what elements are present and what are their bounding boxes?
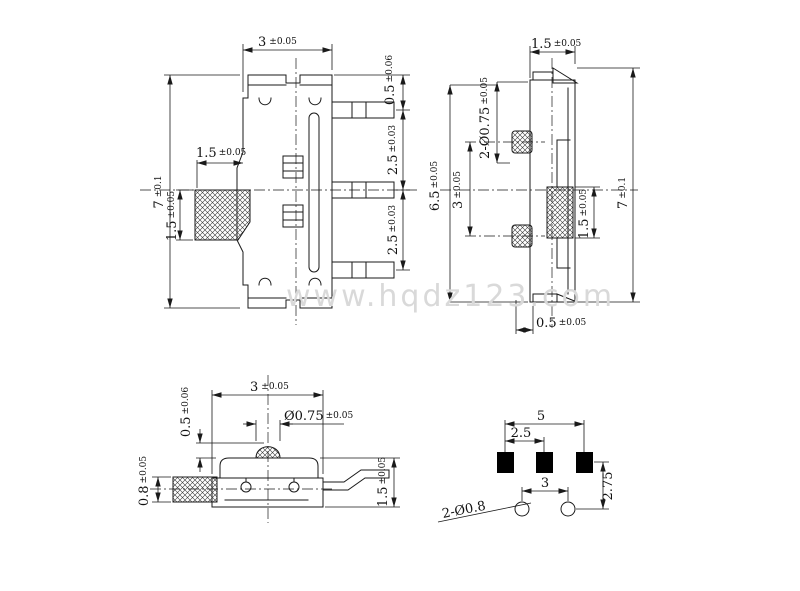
dim-top-width: 3±0.05 [250, 380, 289, 395]
dim-tolerance: ±0.06 [385, 55, 395, 83]
dim-value: 0.8 [137, 485, 152, 506]
dim-front-width: 3±0.05 [258, 35, 297, 50]
dim-value: 1.5 [577, 218, 592, 239]
dim-side-pegs: 2-Ø0.75±0.05 [478, 77, 493, 159]
dim-pcb-holes: 2-Ø0.8 [441, 499, 487, 522]
dim-tolerance: ±0.05 [261, 382, 289, 392]
pcb-pad [576, 452, 593, 473]
dim-top-peg-height: 0.5±0.06 [179, 387, 194, 438]
pcb-hole [561, 502, 575, 516]
dim-value: 3 [258, 35, 266, 50]
dim-value: 2.5 [386, 154, 401, 175]
dim-value: 1.5 [165, 220, 180, 241]
dim-value: 0.5 [179, 416, 194, 437]
dim-pcb-row-gap: 2.75 [601, 472, 616, 501]
dim-tolerance: ±0.05 [269, 37, 297, 47]
dim-pcb-hole-pitch: 3 [541, 476, 549, 491]
dim-top-body-height: 1.5±0.05 [376, 457, 391, 508]
dim-front-top-offset: 0.5±0.06 [383, 55, 398, 106]
dim-side-width: 1.5±0.05 [531, 37, 582, 52]
side-view-slider-knob [547, 187, 573, 238]
dim-value: 1.5 [376, 486, 391, 507]
dim-value: 6.5 [428, 190, 443, 211]
dim-front-knob-length: 1.5±0.05 [196, 146, 247, 161]
dim-tolerance: ±0.05 [378, 457, 388, 485]
dim-value: 2.5 [511, 426, 532, 441]
dim-top-knob-width: 0.8±0.05 [137, 456, 152, 507]
dim-value: 2.75 [601, 472, 616, 501]
dim-side-knob-height: 1.5±0.05 [577, 189, 592, 240]
dim-front-height: 7±0.1 [152, 175, 167, 208]
dim-front-pitch-upper: 2.5±0.03 [386, 125, 401, 176]
dim-value: 7 [152, 200, 167, 208]
dim-pcb-outer-pitch: 5 [537, 409, 545, 424]
dim-tolerance: ±0.1 [618, 177, 628, 199]
dim-value: 2-Ø0.8 [441, 499, 487, 522]
dim-tolerance: ±0.05 [559, 318, 587, 328]
dim-top-peg-diameter: Ø0.75±0.05 [284, 409, 353, 424]
pcb-pad [497, 452, 514, 473]
dim-front-knob-height: 1.5±0.05 [165, 191, 180, 242]
top-view: 3±0.05 0.5±0.06 Ø0.75±0.05 0.8±0.05 1.5±… [137, 375, 400, 523]
front-view-dimension-lines [164, 44, 410, 308]
front-view-outline [237, 75, 332, 308]
dim-value: 2-Ø0.75 [478, 107, 493, 159]
technical-drawing: 3±0.05 7±0.1 1.5±0.05 1.5±0.05 0.5±0.06 … [0, 0, 800, 591]
pcb-layout-view: 5 2.5 3 2.75 2-Ø0.8 [438, 409, 616, 522]
top-view-outline [212, 458, 323, 507]
dim-value: 2.5 [386, 234, 401, 255]
dim-pcb-pad-pitch: 2.5 [511, 426, 532, 441]
dim-tolerance: ±0.05 [554, 39, 582, 49]
dim-side-tab-offset: 0.5±0.05 [536, 316, 587, 331]
front-view-slider-knob [195, 190, 250, 240]
dim-tolerance: ±0.05 [326, 411, 354, 421]
dim-value: 0.5 [536, 316, 557, 331]
front-view-slot [309, 113, 319, 272]
dim-value: 0.5 [383, 84, 398, 105]
dim-tolerance: ±0.05 [139, 456, 149, 484]
dim-tolerance: ±0.06 [181, 387, 191, 415]
pcb-pad [536, 452, 553, 473]
front-view-contacts [283, 156, 303, 227]
dim-side-span: 6.5±0.05 [428, 161, 443, 212]
dim-value: 1.5 [531, 37, 552, 52]
dim-value: 5 [537, 409, 545, 424]
dim-value: Ø0.75 [284, 409, 324, 424]
dim-tolerance: ±0.05 [219, 148, 247, 158]
dim-value: 3 [451, 201, 466, 209]
dim-tolerance: ±0.05 [453, 171, 463, 199]
watermark: www.hqdz123.com [286, 279, 615, 314]
dim-tolerance: ±0.1 [154, 175, 164, 197]
dim-tolerance: ±0.05 [480, 77, 490, 105]
dim-value: 1.5 [196, 146, 217, 161]
dim-value: 3 [250, 380, 258, 395]
side-view-outline [530, 68, 577, 302]
dim-tolerance: ±0.03 [388, 125, 398, 153]
dim-tolerance: ±0.03 [388, 205, 398, 233]
dim-value: 7 [616, 201, 631, 209]
dim-front-pitch-lower: 2.5±0.03 [386, 205, 401, 256]
dim-side-height: 7±0.1 [616, 177, 631, 209]
dim-tolerance: ±0.05 [430, 161, 440, 189]
dim-tolerance: ±0.05 [579, 189, 589, 217]
top-view-slider-knob [173, 477, 217, 502]
dim-value: 3 [541, 476, 549, 491]
drawing-canvas: 3±0.05 7±0.1 1.5±0.05 1.5±0.05 0.5±0.06 … [0, 0, 800, 591]
dim-tolerance: ±0.05 [167, 191, 177, 219]
